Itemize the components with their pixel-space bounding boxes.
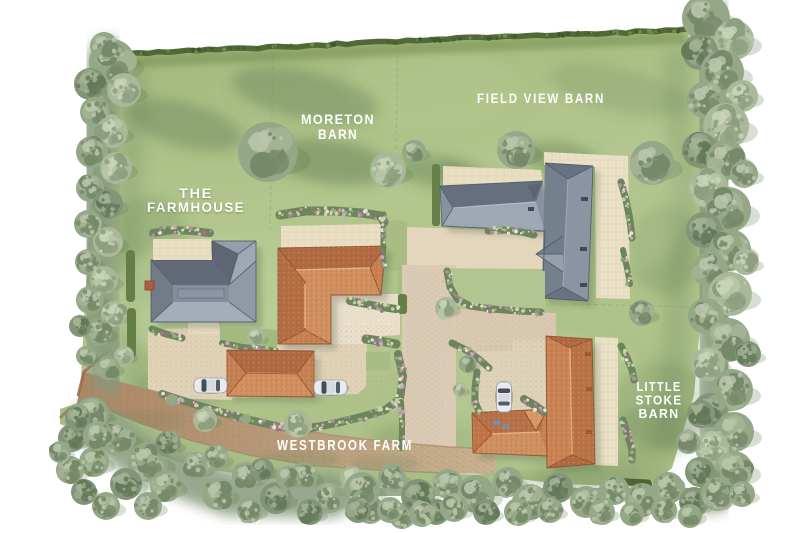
svg-text:BARN: BARN [318,126,358,142]
svg-text:BARN: BARN [639,406,680,421]
svg-text:MORETON: MORETON [301,111,375,127]
svg-text:FIELD VIEW BARN: FIELD VIEW BARN [477,90,605,106]
svg-text:FARMHOUSE: FARMHOUSE [147,199,245,215]
svg-text:WESTBROOK FARM: WESTBROOK FARM [277,438,413,454]
